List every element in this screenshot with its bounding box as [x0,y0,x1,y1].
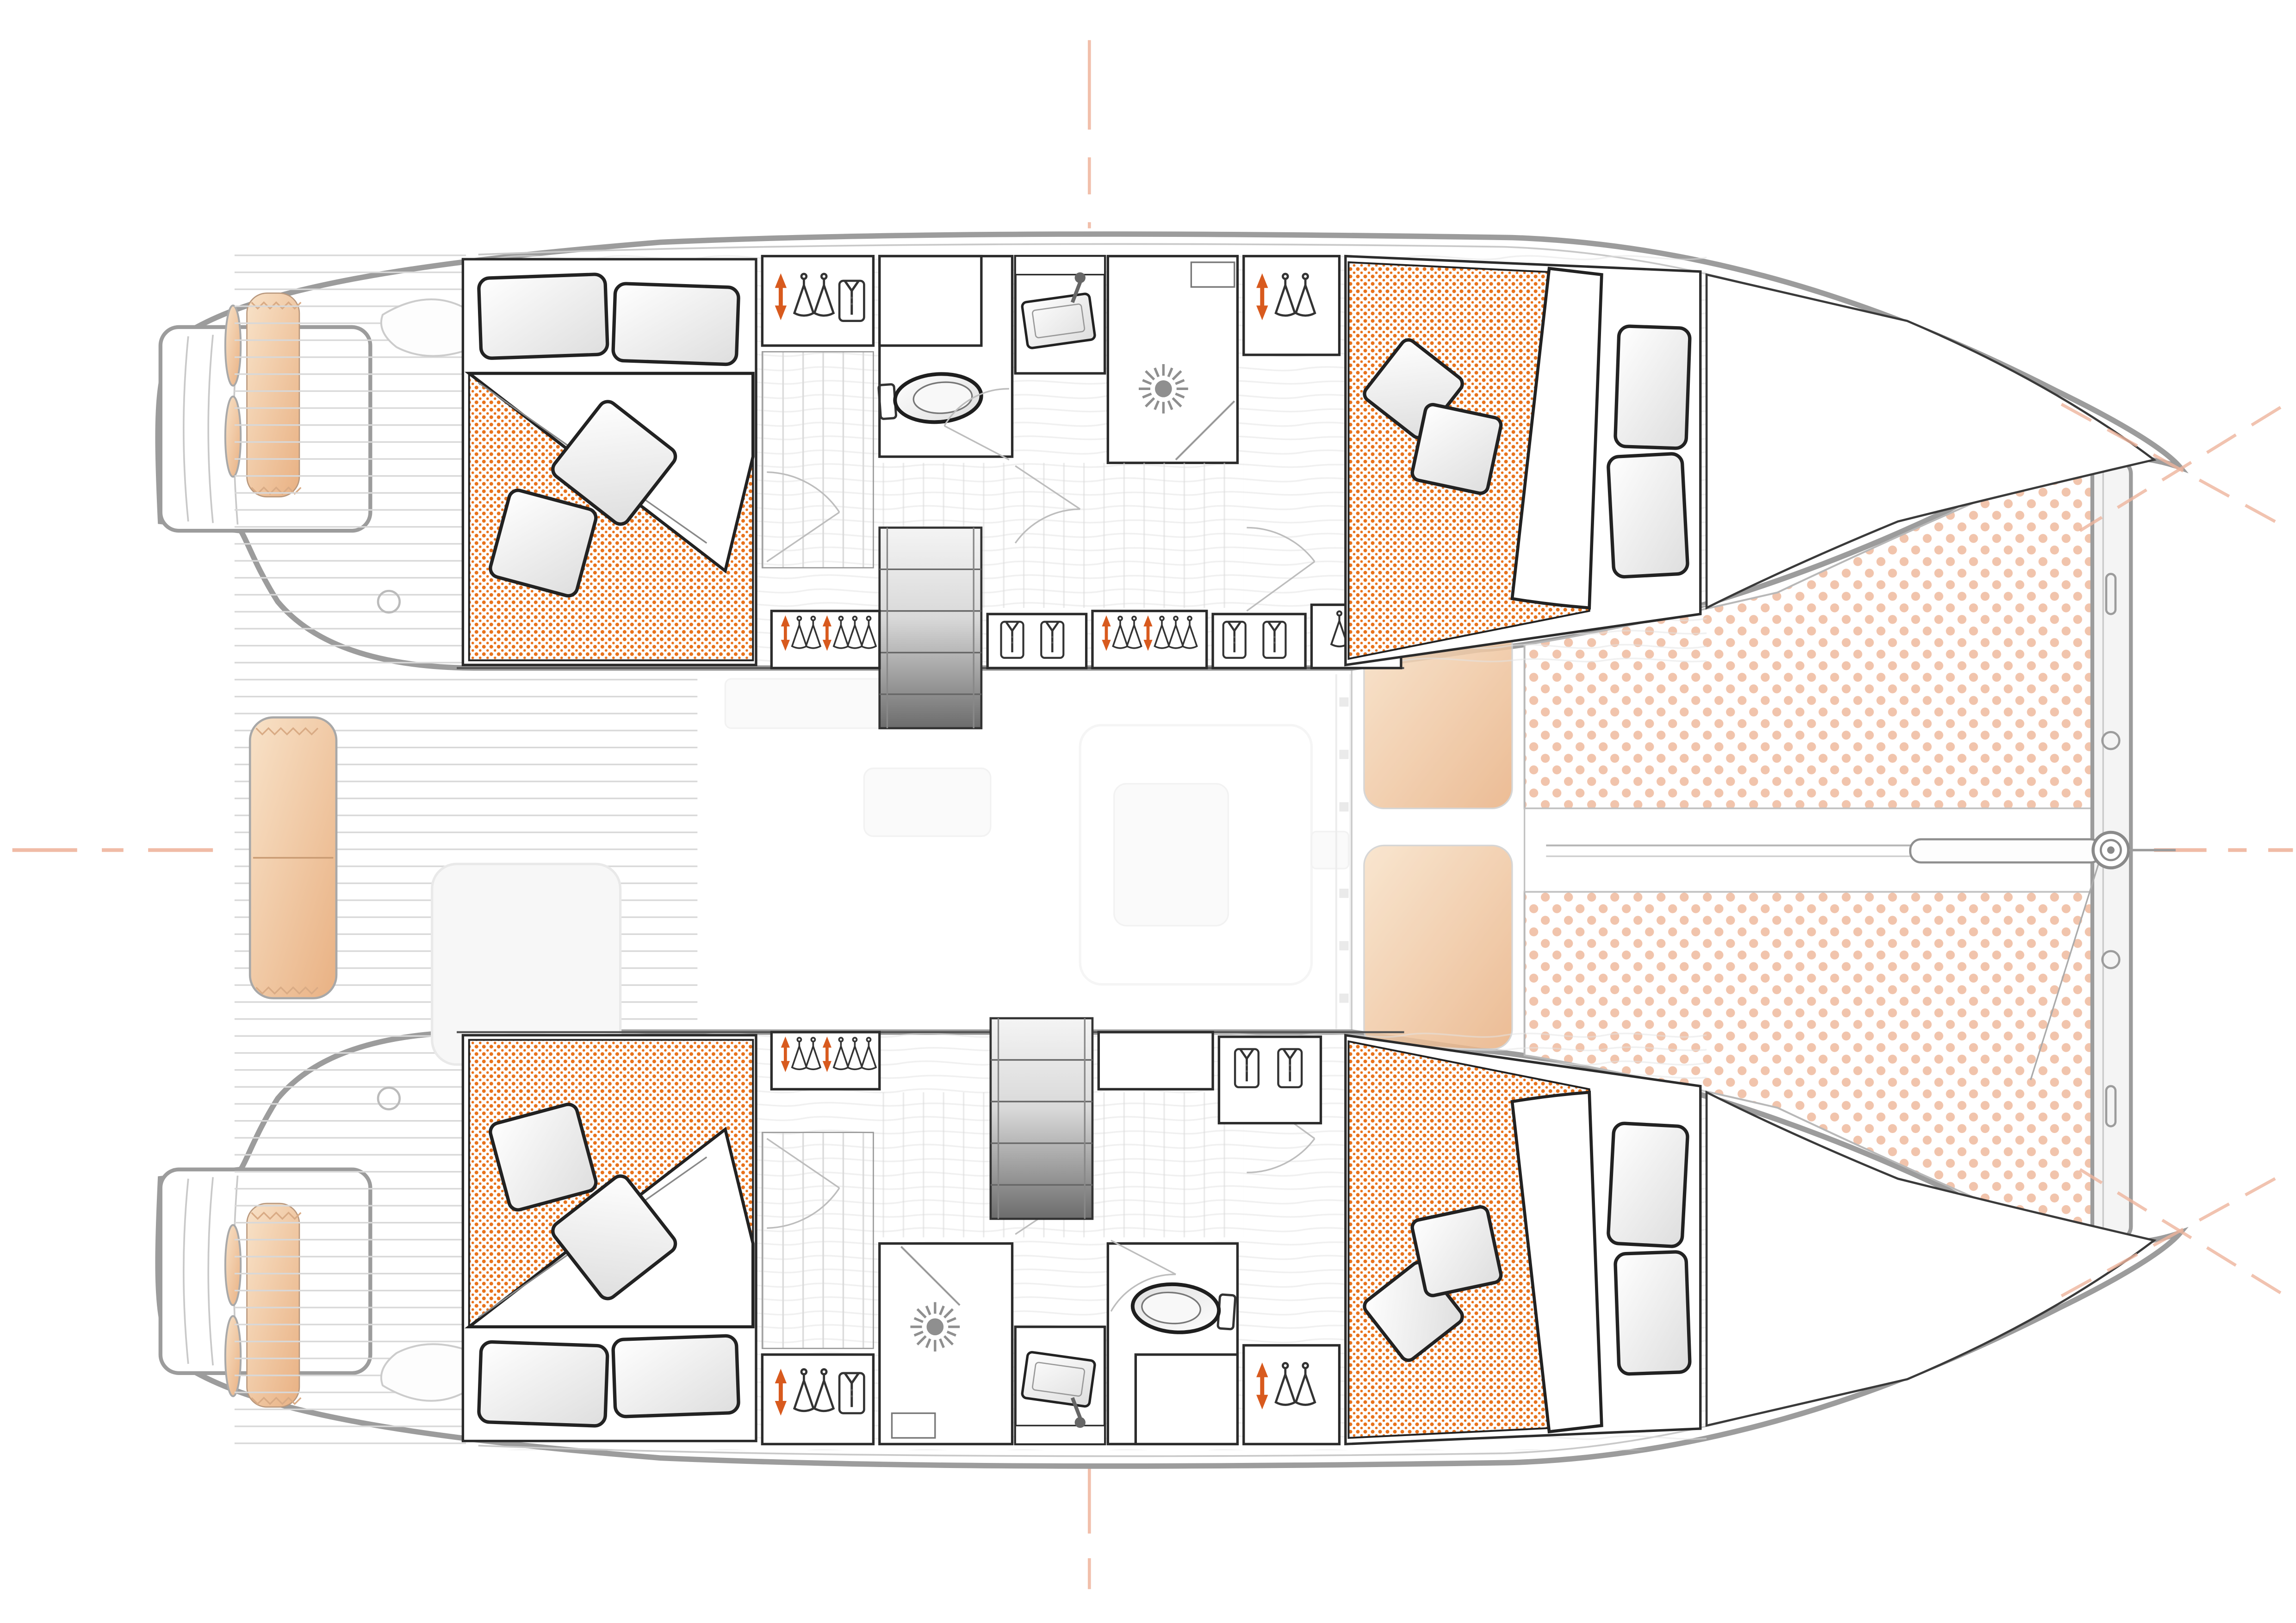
bed-pillow [478,1342,608,1426]
bed-pillow [1615,326,1690,448]
bathroom-cabinet [1136,1355,1237,1444]
catamaran-deck-plan [0,0,2296,1623]
port-forward-cabin [1346,256,1700,665]
bed-pillow [613,283,738,365]
starboard-shower [880,1244,1012,1444]
starboard-walkway [762,1133,873,1349]
faucet [1075,273,1086,283]
starboard-sink [1015,1327,1105,1444]
saloon-table-ghost [1114,784,1229,926]
shower-bench [892,1413,935,1438]
throw-pillow [1411,403,1502,495]
bed-pillow [613,1336,738,1417]
throw-pillow [1411,1206,1502,1297]
port-shower [1108,256,1237,463]
floorplan-canvas [0,0,2296,1623]
port-wardrobe-aft [762,256,873,346]
bathroom-cabinet [880,256,981,346]
port-stairs [880,527,981,728]
washbasin [1022,293,1095,348]
starboard-aft-cabin [463,1035,756,1441]
bed-pillow [478,274,608,359]
starboard-stairs [991,1018,1092,1219]
port-wardrobe-forward [1244,256,1340,355]
port-walkway [762,352,873,568]
starboard-wardrobe-forward [1244,1345,1340,1444]
washbasin [1022,1351,1095,1406]
mast-step-ghost [1311,831,1348,868]
bed-pillow [1608,453,1688,577]
shower-bench [1191,262,1234,287]
bed-pillow [1615,1251,1690,1374]
bowsprit [1910,839,2101,862]
port-sink [1015,256,1105,373]
starboard-wardrobe-aft [762,1355,873,1444]
bed-pillow [1608,1123,1688,1247]
port-toilet-room [878,256,1012,460]
starboard-toilet-room [1108,1240,1237,1444]
galley-island-ghost [864,768,990,836]
faucet [1075,1417,1086,1428]
foredeck-sunpad-starboard [1364,845,1512,1049]
starboard-forward-cabin [1346,1035,1700,1444]
port-aft-cabin [463,259,756,665]
